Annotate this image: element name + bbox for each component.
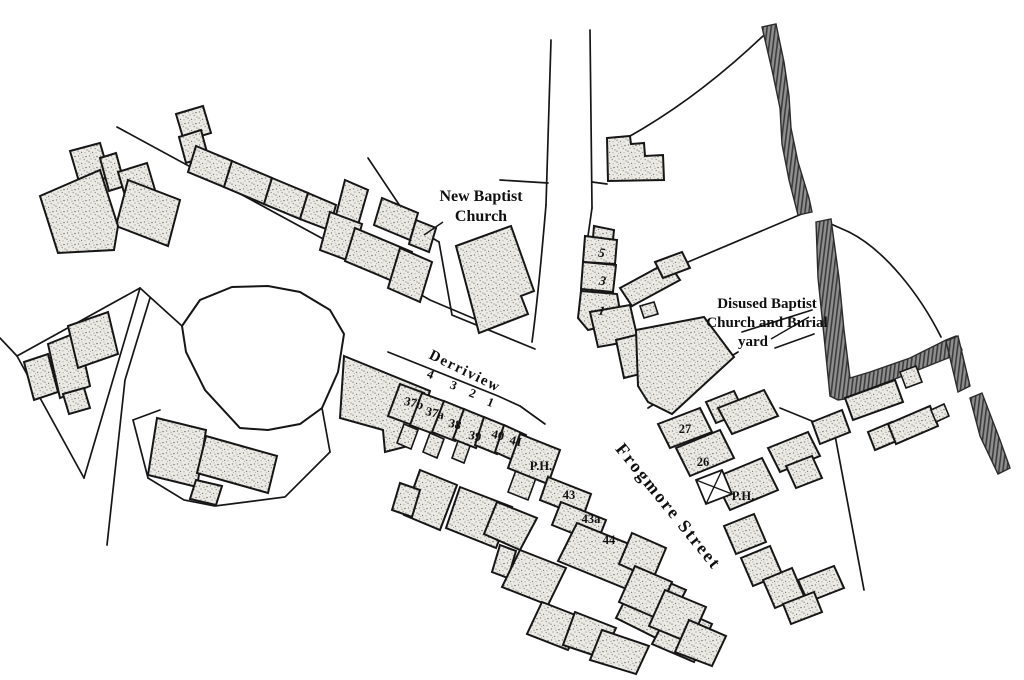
building-polygon [68,312,118,368]
label-house-43a: 43a [582,512,602,526]
building-new-baptist-church [456,226,534,333]
building-polygon [812,410,850,444]
label-house-27: 27 [679,422,692,436]
label-disused-baptist-line1: Disused Baptist [717,296,817,312]
label-new-baptist-church-line2: Church [455,208,507,225]
building-polygon [224,161,272,204]
street-map: New Baptist Church Disused Baptist Churc… [0,0,1024,680]
building-polygon [452,441,470,463]
label-disused-baptist-line3: yard [738,334,769,350]
building-polygon [63,388,90,414]
field-enclosure [182,286,344,430]
road-line [532,205,546,342]
label-ph-west: P.H. [530,459,552,473]
road-line [500,180,548,183]
building-3 [581,262,616,292]
building-polygon [148,418,206,487]
road-line [0,338,17,356]
field-line [688,213,804,262]
road-line [546,40,551,205]
label-plot-2: 2 [467,386,478,401]
field-line [775,334,814,348]
building-polygon [116,180,180,246]
road-line [588,208,592,236]
plot-line [834,430,864,590]
building-polygon [640,302,658,318]
field-line [831,224,849,232]
building-polygon [423,433,444,458]
building-polygon [888,406,938,444]
label-house-43: 43 [563,488,576,502]
stream-band [762,24,812,215]
map-canvas: New Baptist Church Disused Baptist Churc… [0,0,1024,680]
stream-band [970,393,1010,474]
building-polygon [607,136,664,181]
plot-line [520,406,545,424]
label-ph-east: P.H. [732,489,754,503]
stream-band [946,336,970,392]
plot-line [140,288,182,326]
label-plot-1: 1 [485,395,496,410]
stream-band [816,219,962,400]
building-polygon [590,630,649,674]
label-disused-baptist-line2: Church and Burial [706,315,827,331]
building-polygon [724,514,766,554]
label-house-26: 26 [697,455,710,469]
building-polygon [655,252,690,278]
plot-line [322,408,330,452]
road-line [592,182,607,184]
label-new-baptist-church-line1: New Baptist [439,188,523,205]
label-plot-3: 3 [448,378,459,393]
label-house-44: 44 [603,533,616,547]
field-line [630,36,763,136]
field-line [849,232,941,337]
label-plot-4: 4 [425,367,437,383]
